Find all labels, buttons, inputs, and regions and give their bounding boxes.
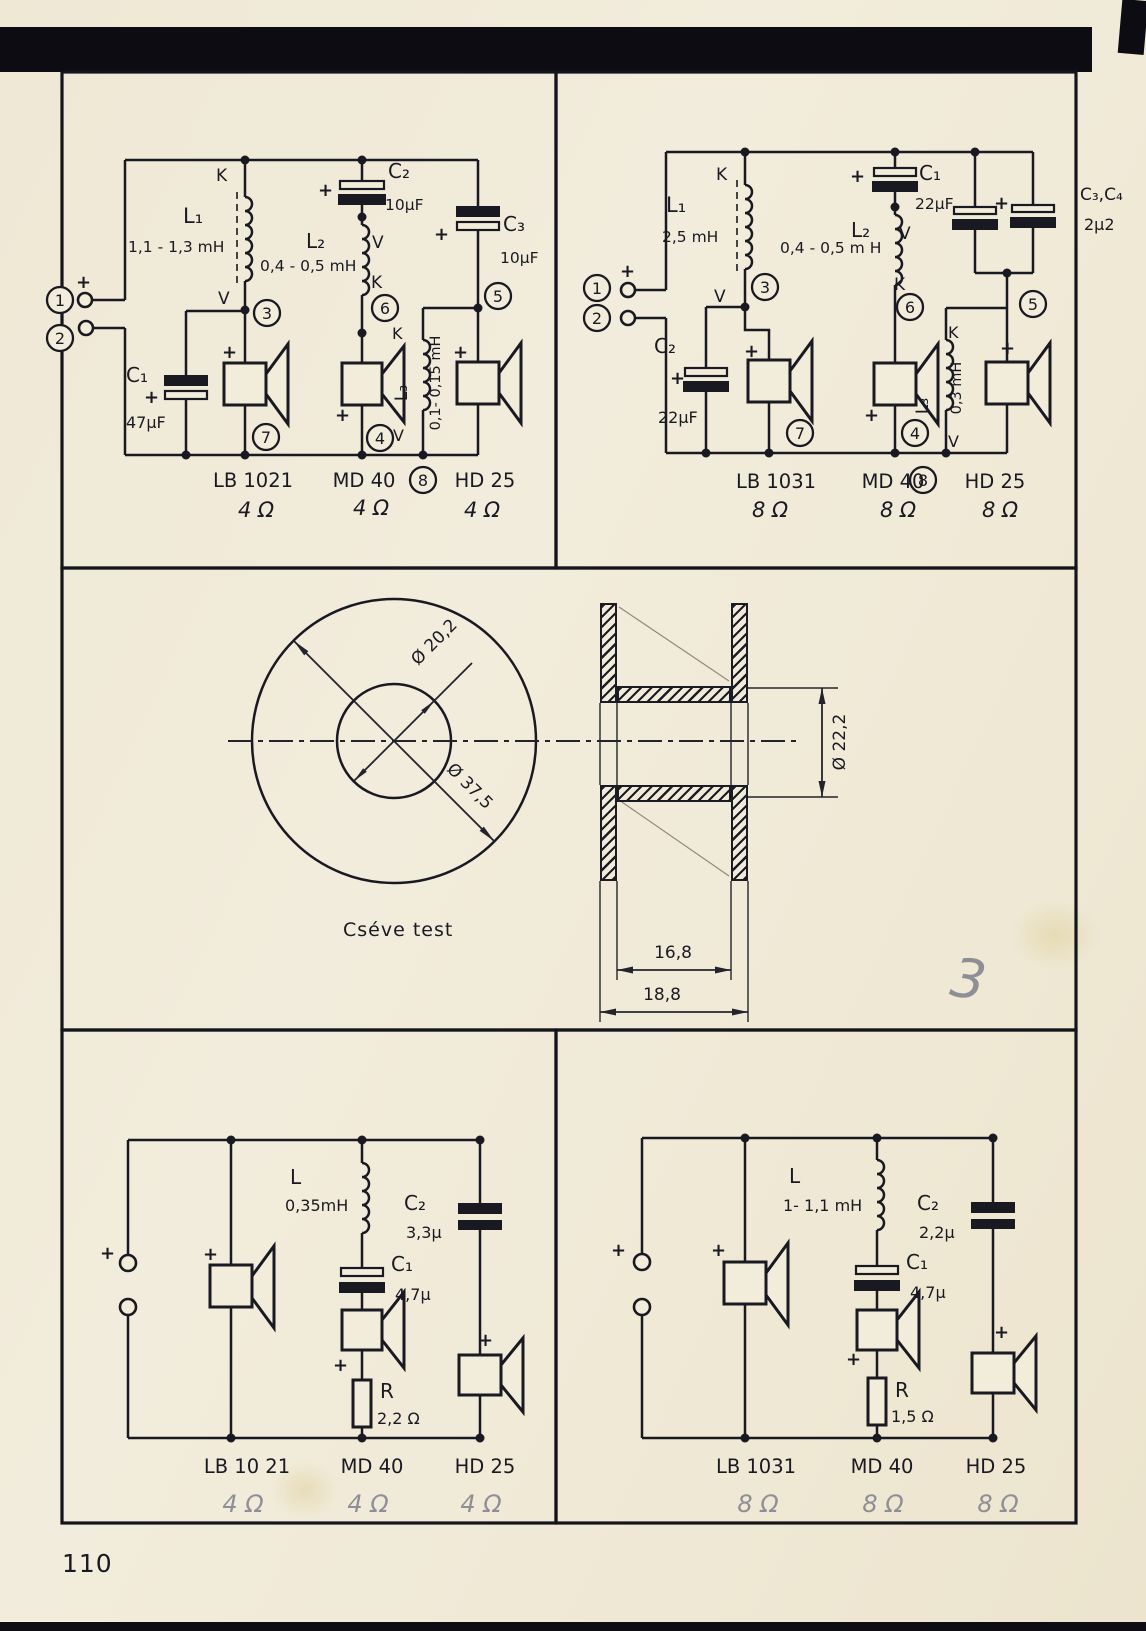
speaker-name-HD25: HD 25	[455, 469, 516, 492]
value-L1: 1,1 - 1,3 mH	[128, 238, 224, 256]
node-5: 5	[1028, 295, 1038, 314]
plus-LB: +	[222, 342, 237, 363]
winding-K-L3: K	[948, 323, 959, 342]
circuit-simple-4ohm: + + L 0,35mH C₁ 4,7µ + R 2,2 Ω C₂ 3,3µ +…	[100, 1136, 523, 1519]
speaker-MD40	[342, 346, 404, 422]
label-L: L	[789, 1164, 801, 1188]
plus-LB: +	[711, 1240, 726, 1261]
input-terminal-plus	[120, 1255, 136, 1271]
plus-MD: +	[335, 405, 350, 426]
inductor-L1-coil	[245, 197, 252, 281]
speaker-MD40	[857, 1292, 919, 1368]
panel-border-top-left	[62, 72, 556, 568]
label-C1: C₁	[906, 1250, 928, 1274]
input-terminal-minus	[120, 1299, 136, 1315]
speaker-name-MD40: MD 40	[851, 1455, 914, 1478]
impedance-HD: 4 Ω	[464, 498, 500, 522]
value-C3: 10µF	[500, 249, 539, 267]
impedance-MD: 4 Ω	[347, 1490, 389, 1518]
plus-C34: +	[994, 193, 1009, 214]
capacitor-C3	[456, 206, 500, 230]
winding-V-L3: V	[393, 426, 404, 445]
bobbin-core-top-web	[617, 686, 731, 703]
bobbin-flange-bottom-right-wall	[731, 785, 748, 881]
speaker-name-MD40: MD 40	[341, 1455, 404, 1478]
input-terminal-minus	[634, 1299, 650, 1315]
plus-C2: +	[318, 180, 333, 201]
plus-C1: +	[850, 166, 865, 187]
panel-border-bottom-right	[556, 1030, 1076, 1523]
value-L3: 0,3 mH	[949, 362, 965, 415]
value-C1: 4,7µ	[395, 1285, 431, 1304]
impedance-MD: 8 Ω	[862, 1490, 904, 1518]
label-R: R	[380, 1379, 394, 1403]
panel-border-bottom-left	[62, 1030, 556, 1523]
impedance-LB: 4 Ω	[238, 498, 274, 522]
value-R: 2,2 Ω	[377, 1409, 420, 1428]
plus-C2: +	[670, 368, 685, 389]
value-L: 1- 1,1 mH	[783, 1196, 862, 1215]
speaker-LB1031	[724, 1243, 788, 1325]
winding-V-L2: V	[372, 233, 384, 253]
dimension-width-inner	[617, 967, 731, 974]
node-4: 4	[910, 424, 920, 443]
node-5: 5	[493, 287, 503, 306]
impedance-HD: 4 Ω	[460, 1490, 502, 1518]
plus-LB: +	[203, 1244, 218, 1265]
value-L1: 2,5 mH	[662, 228, 718, 246]
speaker-name-HD25: HD 25	[966, 1455, 1027, 1478]
speaker-name-LB1031: LB 1031	[716, 1455, 796, 1478]
node-3: 3	[262, 304, 272, 323]
terminal-1-number: 1	[592, 279, 602, 298]
label-C1: C₁	[126, 363, 148, 387]
value-R: 1,5 Ω	[891, 1407, 934, 1426]
plus-input: +	[100, 1243, 115, 1264]
dim-text-core: Ø 22,2	[830, 714, 850, 771]
inductor-L2-coil	[362, 225, 369, 295]
capacitor-C2	[683, 368, 729, 392]
node-3: 3	[760, 278, 770, 297]
bobbin-flange-bottom-left-wall	[600, 785, 617, 881]
dim-text-inner: Ø 20,2	[407, 615, 461, 669]
capacitor-C1	[164, 375, 208, 399]
label-L1: L₁	[183, 204, 203, 228]
plus-HD: +	[1000, 338, 1015, 359]
impedance-LB: 4 Ω	[222, 1490, 264, 1518]
speaker-name-LB1021: LB 10 21	[204, 1455, 290, 1478]
input-terminal-plus	[634, 1254, 650, 1270]
schematic-canvas: 1 2 + 3 6 5 7 4 8 K V L₁ 1,1 - 1,3 mH C₂…	[0, 0, 1146, 1631]
plus-C1: +	[144, 387, 159, 408]
capacitor-C2	[338, 181, 386, 205]
value-L: 0,35mH	[285, 1196, 348, 1215]
impedance-LB: 8 Ω	[737, 1490, 779, 1518]
circuit-crossover-8ohm: 1 2 + 3 6 5 7 4 8 K V L₁ 2,5 mH 0,4 - 0,…	[584, 148, 1123, 523]
value-C2: 22µF	[658, 408, 698, 427]
capacitor-C2	[458, 1203, 502, 1230]
speaker-name-MD40: MD 40	[333, 469, 396, 492]
plus-input: +	[76, 272, 91, 293]
node-7: 7	[795, 424, 805, 443]
resistor-R	[868, 1378, 886, 1425]
terminal-2-number: 2	[55, 329, 65, 348]
impedance-HD: 8 Ω	[977, 1490, 1019, 1518]
plus-input: +	[611, 1240, 626, 1261]
capacitor-C4	[1010, 205, 1056, 228]
value-C3C4: 2µ2	[1084, 215, 1115, 234]
speaker-name-HD25: HD 25	[455, 1455, 516, 1478]
inductor-L-coil	[877, 1160, 884, 1230]
inductor-L1-coil	[745, 185, 752, 269]
circuit-simple-8ohm: + + L 1- 1,1 mH C₁ 4,7µ + R 1,5 Ω C₂ 2,2…	[611, 1134, 1036, 1519]
node-7: 7	[261, 428, 271, 447]
junction-dots	[702, 148, 1012, 458]
label-C3C4: C₃,C₄	[1080, 185, 1123, 205]
value-L3: 0,1- 0,15 mH	[428, 336, 444, 431]
capacitor-C3	[952, 207, 998, 230]
value-C1: 47µF	[126, 413, 166, 432]
bobbin-core-bottom-web	[617, 785, 731, 802]
label-C2: C₂	[654, 334, 676, 358]
plus-MD: +	[333, 1355, 348, 1376]
inductor-L-coil	[362, 1163, 369, 1233]
dim-text-outer: Ø 37,5	[442, 759, 496, 813]
label-L2: L₂	[306, 229, 325, 253]
dimension-core-diameter	[819, 688, 826, 797]
dim-text-width-inner: 16,8	[654, 943, 692, 963]
label-L: L	[290, 1165, 302, 1189]
winding-V: V	[218, 289, 230, 309]
speaker-name-LB1021: LB 1021	[213, 469, 293, 492]
node-8: 8	[418, 471, 428, 490]
winding-V-L2: V	[899, 224, 911, 244]
capacitor-C1	[854, 1266, 900, 1291]
value-C2: 2,2µ	[919, 1223, 955, 1242]
plus-HD: +	[478, 1330, 493, 1351]
winding-K-L3: K	[392, 324, 403, 343]
dimension-width-outer	[600, 1009, 748, 1016]
label-C1: C₁	[919, 161, 941, 185]
node-6: 6	[380, 299, 390, 318]
winding-K: K	[716, 165, 728, 185]
speaker-LB1021	[210, 1246, 274, 1328]
value-C2: 10µF	[385, 196, 424, 214]
pencil-note-3: 3	[947, 946, 991, 1014]
label-C2: C₂	[404, 1191, 426, 1215]
value-C1: 22µF	[915, 195, 954, 213]
panel-border-middle	[62, 568, 1076, 1030]
speaker-HD25	[972, 1336, 1036, 1410]
plus-MD: +	[864, 405, 879, 426]
winding-K-L2: K	[371, 273, 383, 293]
plus-HD: +	[453, 342, 468, 363]
plus-MD: +	[846, 1349, 861, 1370]
label-L3: L₃	[392, 385, 412, 401]
plus-LB: +	[744, 341, 759, 362]
impedance-MD: 4 Ω	[353, 496, 389, 520]
capacitor-C2	[971, 1202, 1015, 1229]
label-R: R	[895, 1378, 909, 1402]
impedance-LB: 8 Ω	[752, 498, 788, 522]
label-C2: C₂	[917, 1191, 939, 1215]
bobbin-flange-top-left-wall	[600, 603, 617, 703]
label-L1: L₁	[666, 193, 686, 217]
scanned-page: 1 2 + 3 6 5 7 4 8 K V L₁ 1,1 - 1,3 mH C₂…	[0, 0, 1146, 1631]
page-number: 110	[62, 1549, 113, 1578]
speaker-name-MD40: MD 40	[862, 470, 925, 493]
label-L3: L₃	[913, 398, 933, 414]
plus-C3: +	[434, 224, 449, 245]
winding-V: V	[714, 287, 726, 307]
label-C1: C₁	[391, 1252, 413, 1276]
terminal-2-number: 2	[592, 309, 602, 328]
value-C2: 3,3µ	[406, 1223, 442, 1242]
bobbin-caption: Cséve test	[343, 919, 453, 941]
resistor-R	[353, 1380, 371, 1427]
speaker-name-HD25: HD 25	[965, 470, 1026, 493]
capacitor-C1	[872, 168, 918, 192]
value-L2: 0,4 - 0,5 mH	[260, 257, 356, 275]
impedance-HD: 8 Ω	[982, 498, 1018, 522]
speaker-name-LB1031: LB 1031	[736, 470, 816, 493]
value-C1: 4,7µ	[910, 1283, 946, 1302]
plus-HD: +	[994, 1322, 1009, 1343]
input-terminal-2	[47, 321, 93, 351]
bobbin-flange-top-right-wall	[731, 603, 748, 703]
speaker-HD25	[986, 343, 1050, 423]
label-C3: C₃	[503, 212, 525, 236]
terminal-1-number: 1	[55, 291, 65, 310]
circuit-crossover-4ohm: 1 2 + 3 6 5 7 4 8 K V L₁ 1,1 - 1,3 mH C₂…	[47, 156, 539, 523]
winding-K: K	[216, 166, 228, 186]
label-C2: C₂	[388, 159, 410, 183]
label-L2: L₂	[851, 218, 870, 242]
winding-K-L2: K	[894, 275, 906, 295]
winding-V-L3: V	[948, 432, 959, 451]
impedance-MD: 8 Ω	[880, 498, 916, 522]
node-6: 6	[905, 298, 915, 317]
plus-input: +	[620, 261, 635, 282]
dim-text-width-outer: 18,8	[643, 985, 681, 1005]
node-4: 4	[375, 429, 385, 448]
capacitor-C1	[339, 1268, 385, 1293]
